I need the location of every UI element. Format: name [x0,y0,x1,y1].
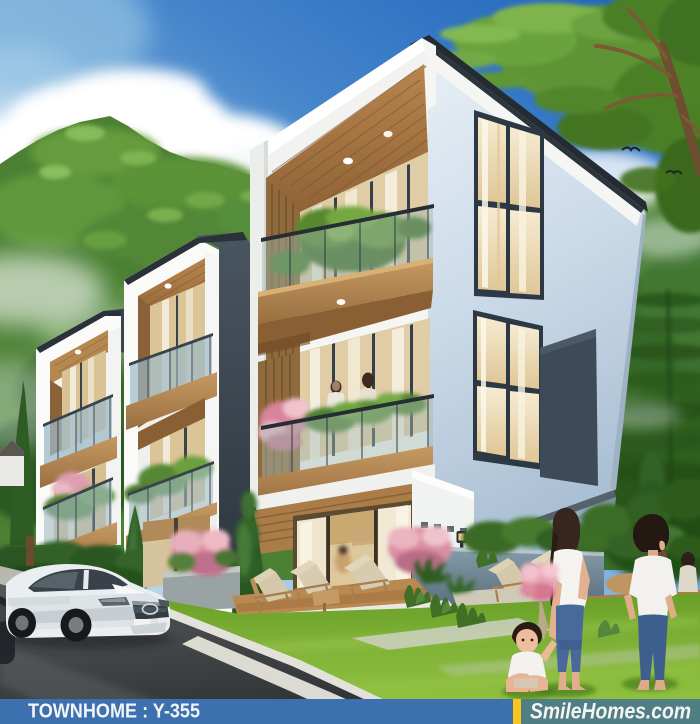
svg-text:SmileHomes.com: SmileHomes.com [530,699,691,724]
svg-text:TOWNHOME : Y-355: TOWNHOME : Y-355 [28,701,200,723]
